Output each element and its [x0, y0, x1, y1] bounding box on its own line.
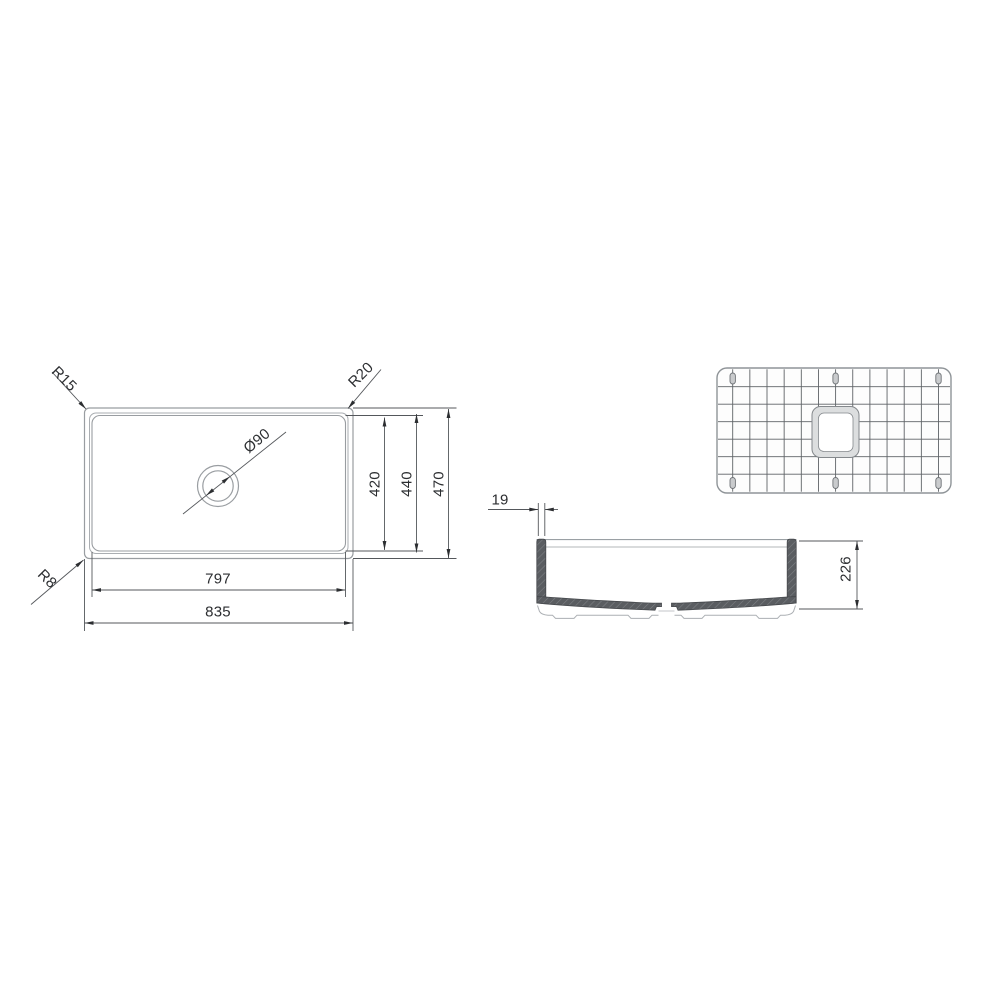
label-dim-835: 835: [205, 604, 231, 619]
label-dim-470: 470: [431, 471, 446, 497]
grid-drain-opening: [812, 407, 859, 458]
section-view: [488, 503, 863, 618]
plan-sink-outline: [85, 408, 354, 559]
section-walls: [537, 539, 796, 610]
label-dim-440: 440: [399, 471, 414, 497]
label-dim-19: 19: [491, 492, 508, 507]
plan-dimension-lines: [31, 370, 457, 632]
grid-view: [717, 368, 951, 493]
section-arrowheads: [529, 508, 859, 609]
label-dim-226: 226: [838, 556, 853, 582]
technical-drawing-sheet: R15 R20 R8 Ø90 420 440 470 797 835 19 22…: [0, 0, 990, 990]
label-dim-420: 420: [367, 471, 382, 497]
plan-view: [31, 370, 457, 632]
section-undershell: [538, 606, 796, 619]
label-dim-797: 797: [205, 571, 231, 586]
